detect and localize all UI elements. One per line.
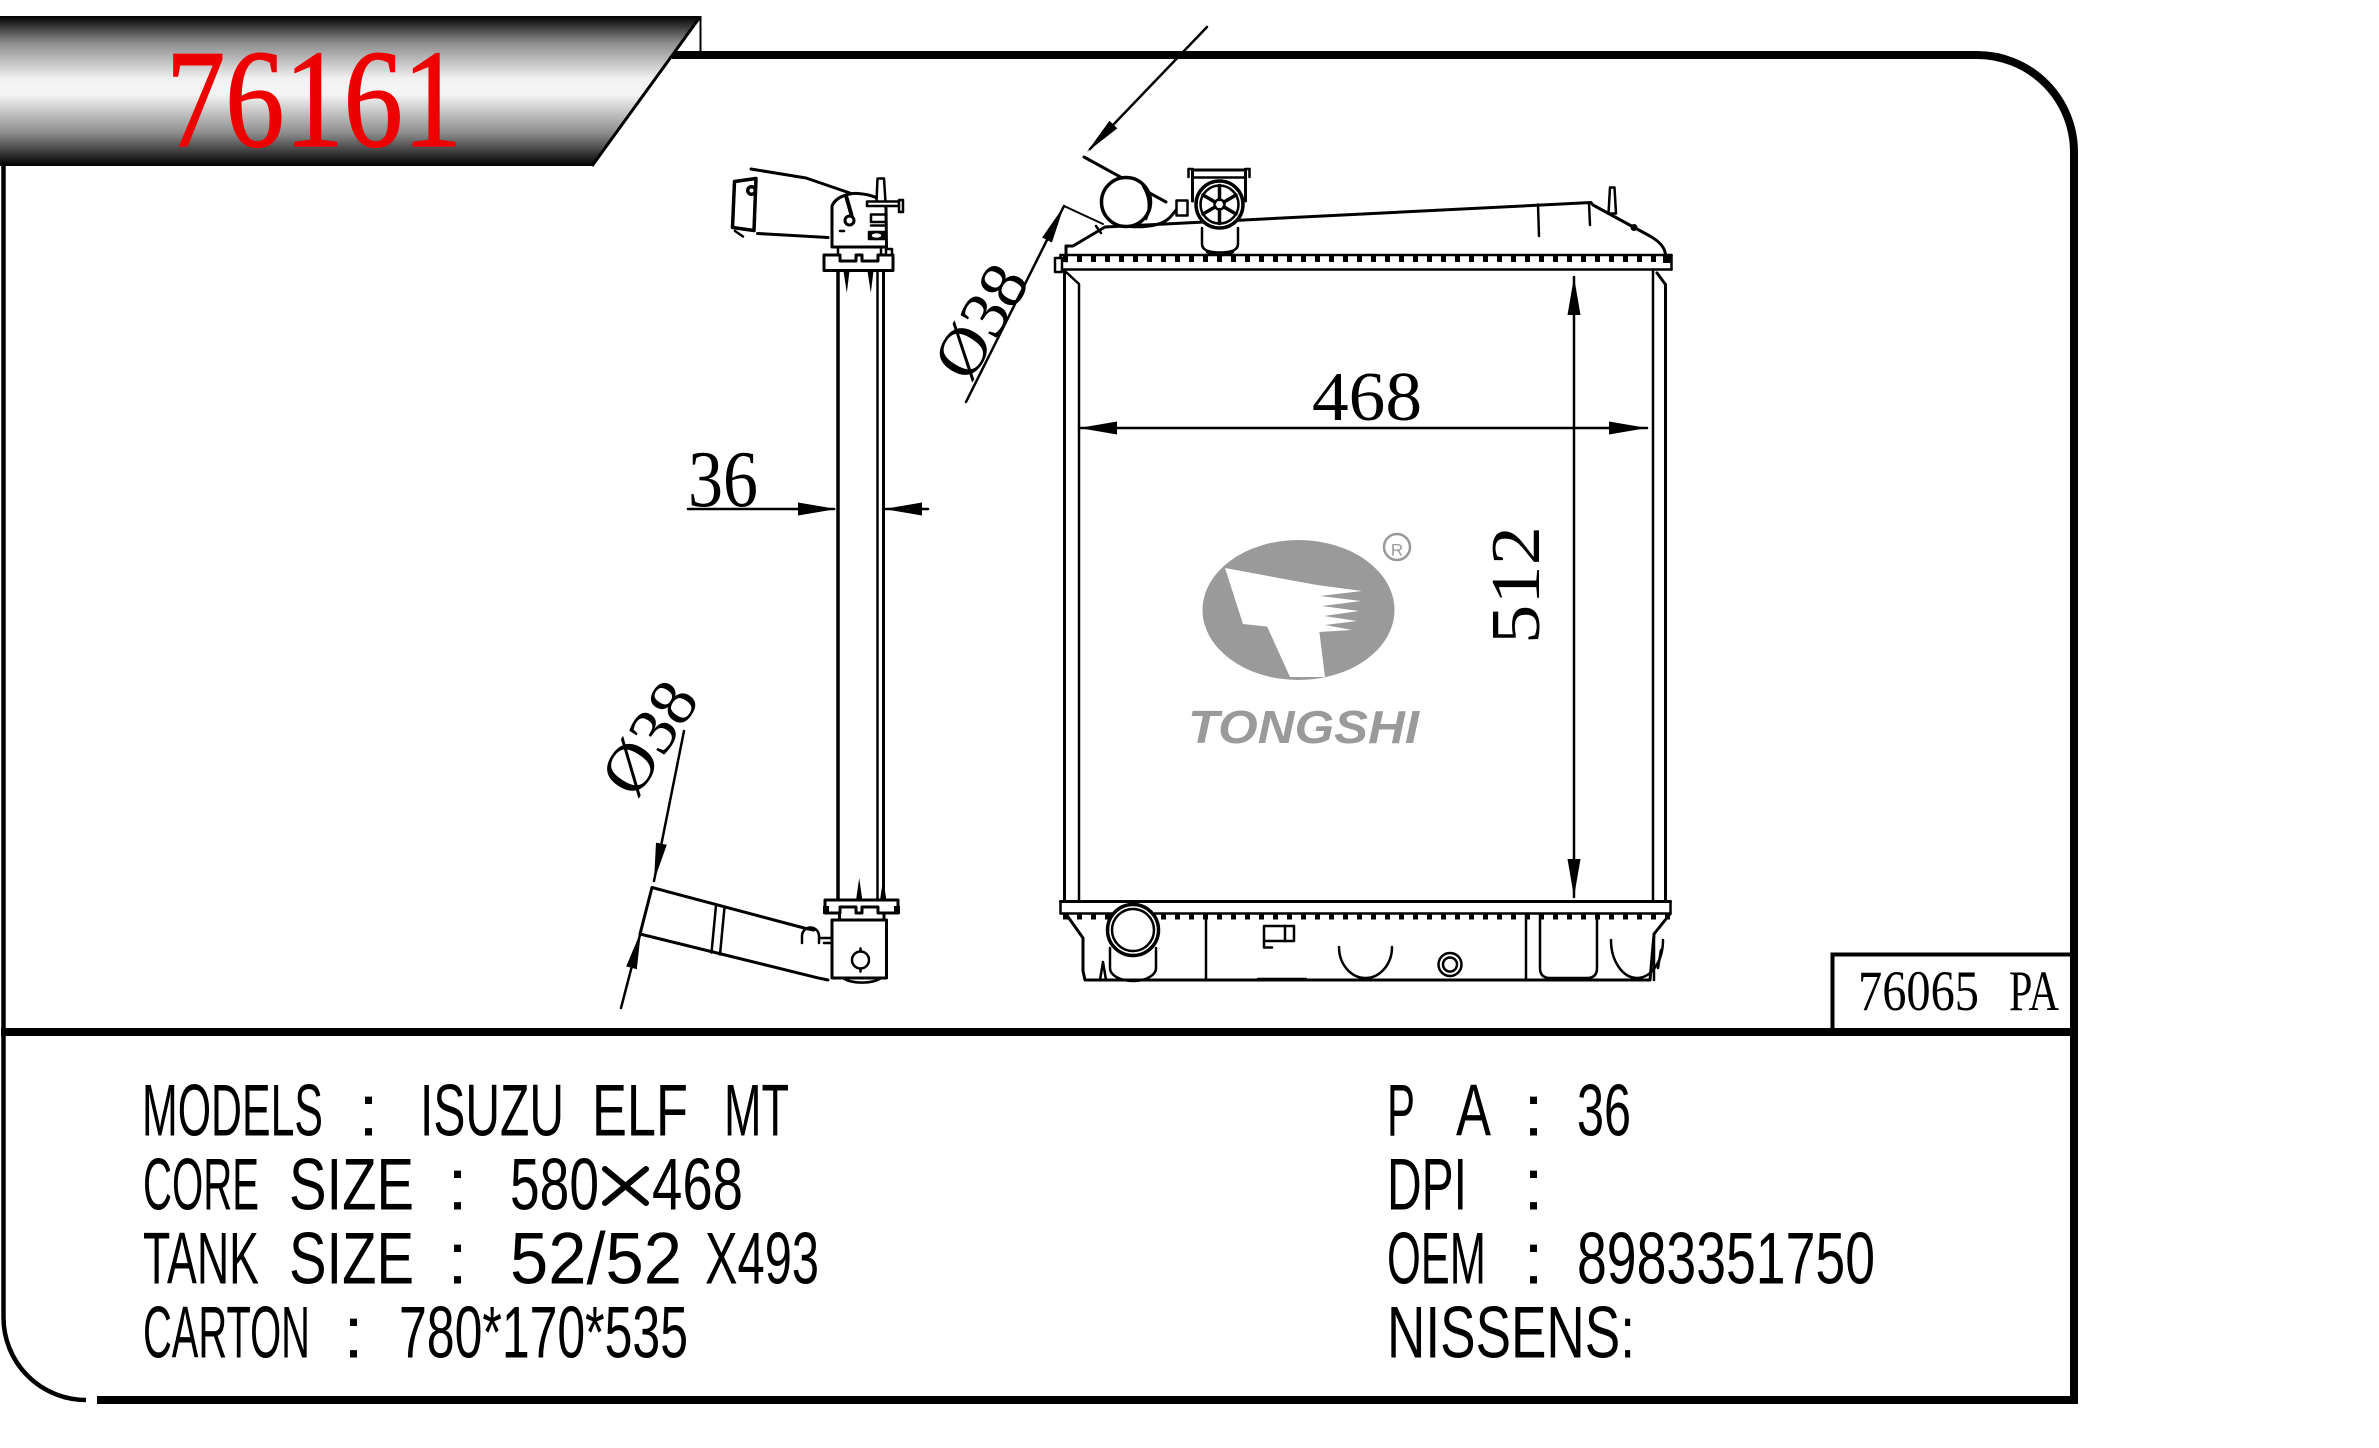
svg-text:780*170*535: 780*170*535 — [399, 1293, 688, 1374]
svg-text:OEM: OEM — [1387, 1219, 1486, 1300]
svg-text:TANK: TANK — [143, 1219, 259, 1300]
svg-text:NISSENS:: NISSENS: — [1387, 1293, 1635, 1374]
svg-text:A: A — [1456, 1071, 1491, 1152]
svg-text::: : — [447, 1219, 467, 1300]
svg-text:512: 512 — [1478, 526, 1555, 644]
svg-text:CARTON: CARTON — [143, 1293, 310, 1374]
svg-text:52/52: 52/52 — [510, 1219, 682, 1300]
svg-text:76161: 76161 — [166, 22, 462, 177]
svg-text:MT: MT — [724, 1071, 789, 1152]
svg-text:36: 36 — [1577, 1071, 1631, 1152]
svg-text:MODELS: MODELS — [142, 1071, 323, 1152]
svg-text::: : — [1523, 1219, 1543, 1300]
svg-text:580: 580 — [510, 1145, 599, 1226]
svg-text:76065: 76065 — [1858, 960, 1979, 1023]
svg-text::: : — [343, 1293, 363, 1374]
svg-text::: : — [447, 1145, 467, 1226]
svg-text:SIZE: SIZE — [289, 1219, 414, 1300]
svg-text::: : — [1523, 1145, 1543, 1226]
svg-text::: : — [358, 1071, 378, 1152]
svg-text:ELF: ELF — [592, 1071, 688, 1152]
svg-text:X493: X493 — [705, 1219, 819, 1300]
svg-text:P: P — [1387, 1071, 1415, 1152]
svg-text:TONGSHI: TONGSHI — [1188, 701, 1420, 753]
svg-text::: : — [1523, 1071, 1543, 1152]
svg-text:36: 36 — [688, 436, 758, 524]
svg-text:R: R — [1391, 541, 1403, 560]
svg-text:DPI: DPI — [1387, 1145, 1467, 1226]
svg-text:PA: PA — [2009, 960, 2059, 1023]
svg-text:SIZE: SIZE — [289, 1145, 414, 1226]
svg-text:8983351750: 8983351750 — [1577, 1219, 1875, 1300]
svg-text:ISUZU: ISUZU — [420, 1071, 564, 1152]
svg-text:468: 468 — [652, 1145, 743, 1226]
svg-text:468: 468 — [1312, 359, 1422, 436]
svg-text:CORE: CORE — [143, 1145, 259, 1226]
